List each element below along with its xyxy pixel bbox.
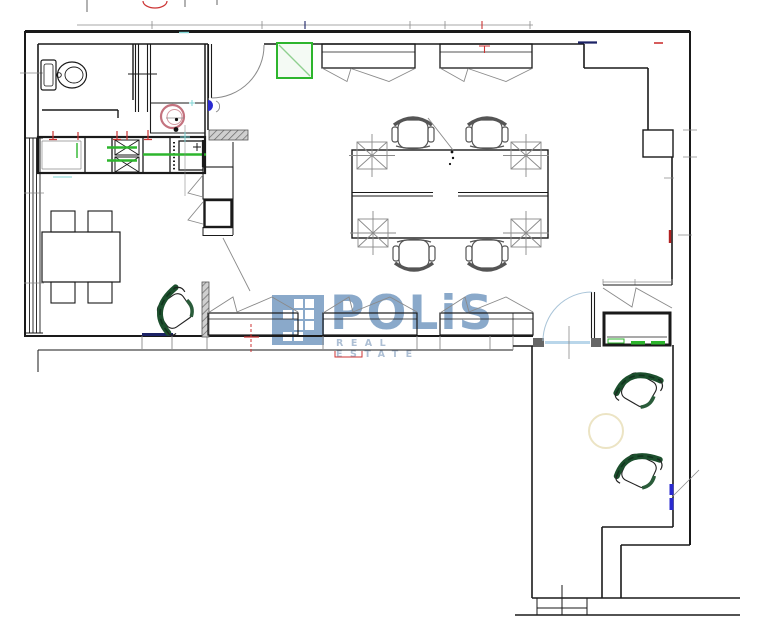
window-top-2 <box>440 44 532 82</box>
dimension-marks <box>77 0 533 29</box>
window-bottom-2 <box>323 297 417 335</box>
outlet-marks <box>49 130 152 140</box>
armchair-icon <box>149 284 201 337</box>
red-bracket-mark <box>335 351 362 357</box>
radiator-icon <box>323 297 417 313</box>
pen-marks <box>449 151 454 165</box>
ac-unit-icon <box>277 43 312 78</box>
office-chair-icon <box>466 240 508 271</box>
floor-box-icon <box>503 211 549 255</box>
leader-line <box>428 118 453 150</box>
floor-box-icon <box>349 134 395 177</box>
entry-door-icon <box>208 44 264 112</box>
entry-hall <box>150 33 264 137</box>
radiator-icon <box>208 297 298 313</box>
wall-ticks <box>664 130 697 235</box>
dining-table <box>42 232 120 282</box>
floor-plan-drawing <box>0 0 770 643</box>
column <box>643 130 673 157</box>
floor-box-icon <box>503 134 549 177</box>
floor-box-icon <box>350 211 396 255</box>
window-right <box>603 279 672 308</box>
radiator-icon <box>440 297 533 313</box>
window-top-1 <box>322 44 415 82</box>
inner-walls <box>25 44 673 598</box>
dining-chair <box>51 211 75 232</box>
dining-chair <box>51 282 75 303</box>
floor-plan: POLiS REAL ESTATE <box>0 0 770 643</box>
hall-door-icon <box>533 292 601 359</box>
radiator-icon <box>603 288 672 308</box>
wall-fixture-blue <box>670 470 700 510</box>
dining-chair <box>88 282 112 303</box>
radiator-icon <box>440 68 532 82</box>
toilet-icon <box>41 60 87 90</box>
window-bottom-1 <box>208 297 298 335</box>
wall-hatch-top <box>209 130 248 140</box>
door-handle-icon <box>208 100 213 111</box>
washbasin-icon <box>161 105 184 132</box>
dining-set <box>42 211 120 303</box>
radiator-icon <box>322 68 415 82</box>
office-chair-icon <box>393 240 435 271</box>
dining-chair <box>88 211 112 232</box>
stairs-icon <box>537 585 587 615</box>
bathroom <box>41 44 157 118</box>
kitchen-counter <box>38 125 206 196</box>
office-chair-icon <box>392 118 434 149</box>
left-window <box>20 73 44 333</box>
fridge-icon <box>174 141 203 171</box>
office-chair-icon <box>466 118 508 149</box>
armchair-icon <box>614 364 665 416</box>
corner-cabinet <box>188 140 250 291</box>
armchair-icon <box>614 446 664 496</box>
sideboard <box>604 313 670 345</box>
radiator-icon <box>188 175 203 224</box>
window-bottom-3 <box>440 297 533 335</box>
side-table <box>589 414 623 448</box>
